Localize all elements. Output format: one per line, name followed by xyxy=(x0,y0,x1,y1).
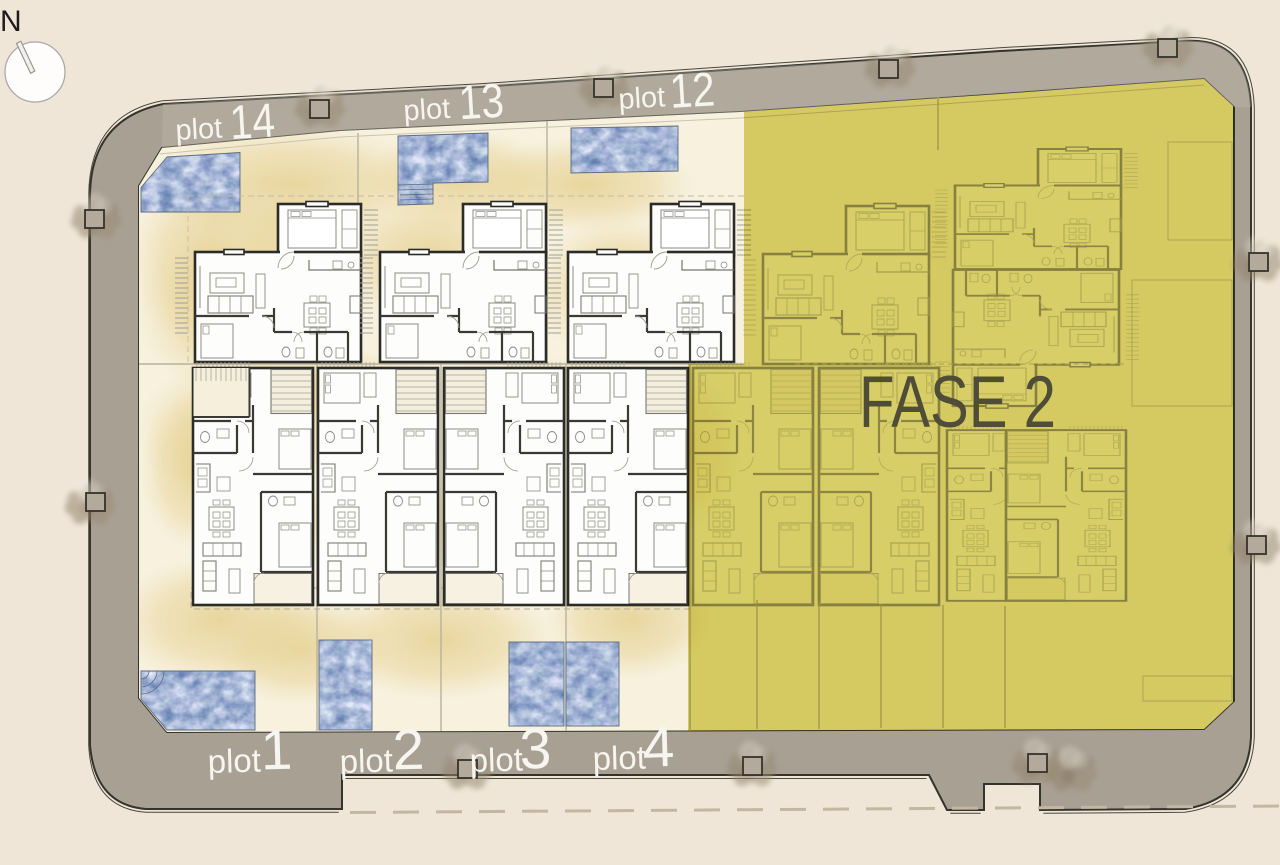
svg-text:N: N xyxy=(0,5,22,38)
svg-text:FASE 2: FASE 2 xyxy=(859,362,1056,443)
